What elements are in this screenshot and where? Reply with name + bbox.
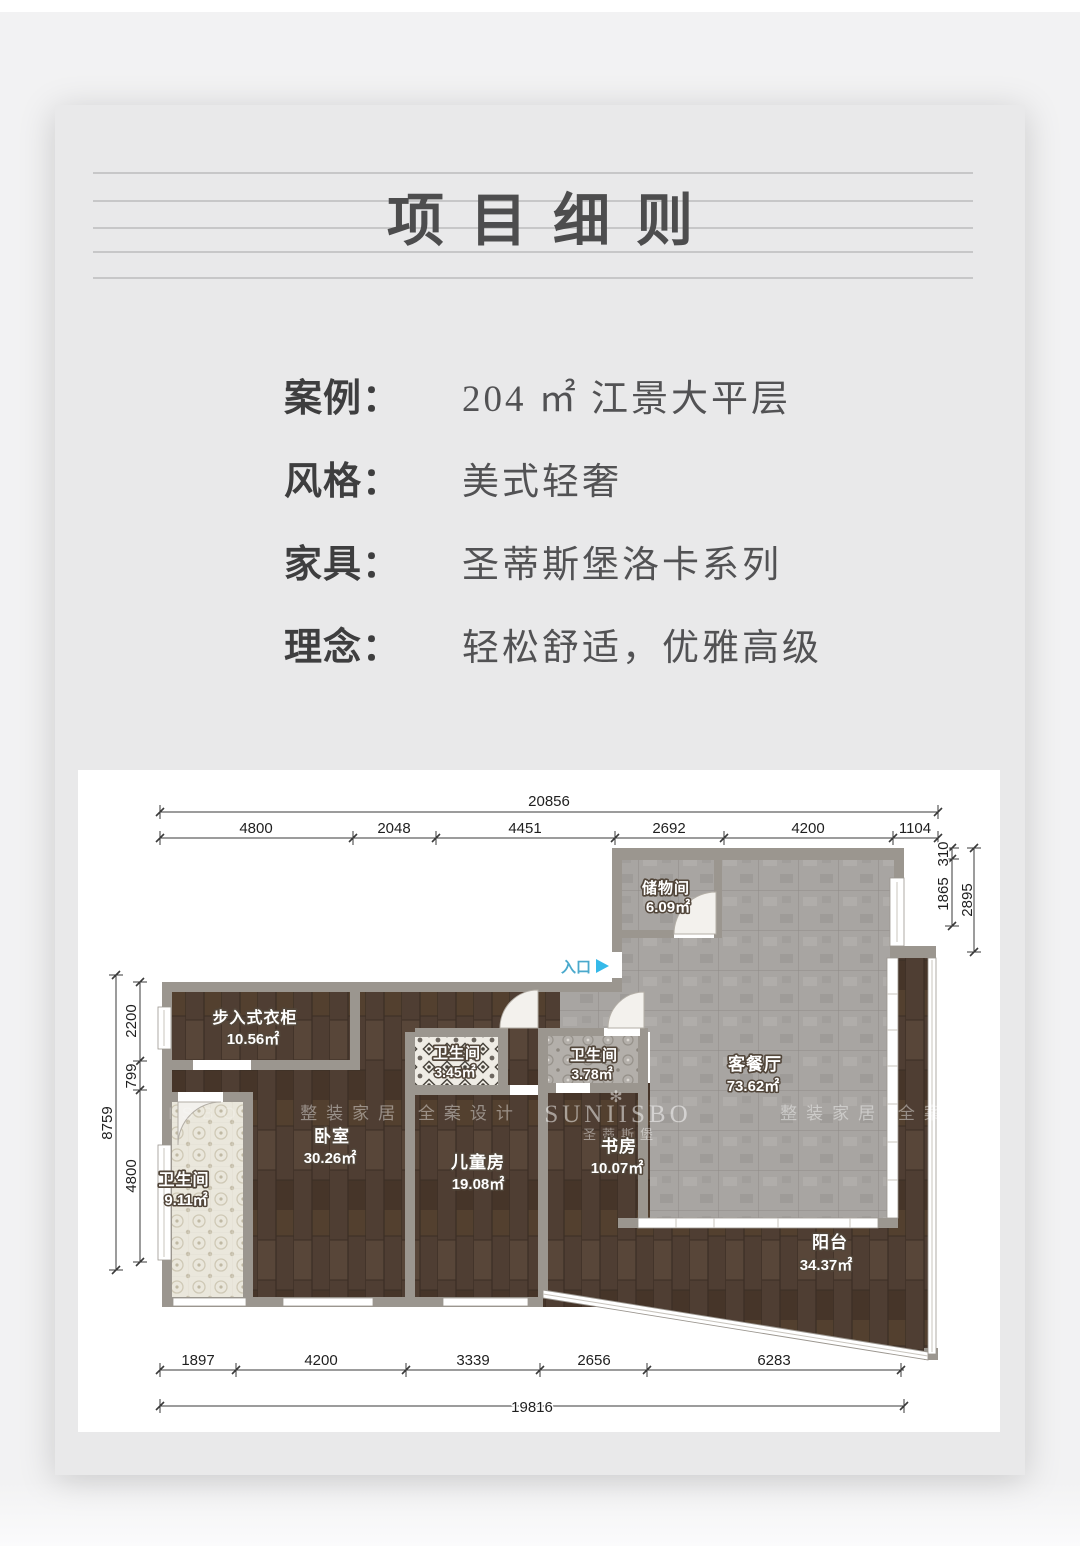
room-area: 3.78㎡ — [571, 1066, 612, 1082]
room-area: 10.07㎡ — [591, 1159, 644, 1177]
floorplan-panel: 入口 SUNIISBO 整装家居 全案设计 SUNIISBO ✻ 圣蒂斯堡 整装… — [78, 770, 1000, 1432]
detail-row-furniture: 家具： 圣蒂斯堡洛卡系列 — [284, 533, 822, 588]
dim-left-total: 8759 — [99, 1106, 116, 1139]
dim-top-seg: 4800 — [239, 820, 272, 837]
title-rule-line — [93, 172, 973, 174]
dim-bottom-seg: 1897 — [181, 1352, 214, 1369]
detail-label: 理念： — [284, 616, 462, 671]
room-name: 卫生间 — [570, 1046, 618, 1064]
detail-card: 项目细则 案例： 204 ㎡ 江景大平层 风格： 美式轻奢 家具： 圣蒂斯堡洛卡… — [55, 105, 1025, 1475]
detail-label: 案例： — [284, 367, 462, 422]
room-name: 步入式衣柜 — [212, 1008, 297, 1027]
poster-page: 项目细则 案例： 204 ㎡ 江景大平层 风格： 美式轻奢 家具： 圣蒂斯堡洛卡… — [0, 0, 1080, 1546]
dim-bottom-seg: 4200 — [304, 1352, 337, 1369]
entrance-label: 入口 — [561, 959, 591, 976]
room-name: 卧室 — [314, 1126, 350, 1146]
dim-bottom-total: 19816 — [511, 1399, 553, 1416]
room-name: 卫生间 — [433, 1044, 481, 1062]
room-name: 卫生间 — [158, 1170, 209, 1189]
detail-value: 美式轻奢 — [462, 451, 622, 505]
room-name: 储物间 — [642, 879, 690, 897]
entrance-marker: 入口 — [561, 959, 609, 976]
room-area: 19.08㎡ — [452, 1175, 505, 1193]
room-area: 9.11㎡ — [164, 1191, 207, 1209]
dim-right-seg: 310 — [935, 841, 952, 866]
dim-bottom-seg: 3339 — [456, 1352, 489, 1369]
detail-label: 风格： — [284, 450, 462, 505]
balcony-floor — [543, 1228, 928, 1356]
dim-top-seg: 4451 — [508, 820, 541, 837]
title-rule-line — [93, 277, 973, 279]
watermark-left: 整装家居 全案设计 — [300, 1104, 522, 1123]
dim-top-seg: 2048 — [377, 820, 410, 837]
dim-left-seg: 799 — [123, 1063, 140, 1088]
room-area: 10.56㎡ — [227, 1030, 280, 1048]
room-area: 30.26㎡ — [304, 1149, 357, 1167]
dim-bottom-seg: 2656 — [577, 1352, 610, 1369]
room-name: 阳台 — [812, 1232, 848, 1252]
detail-row-concept: 理念： 轻松舒适，优雅高级 — [284, 616, 822, 671]
dim-left-seg: 4800 — [123, 1159, 140, 1192]
bottom-gradient — [0, 1482, 1080, 1546]
room-name: 客餐厅 — [727, 1054, 782, 1074]
room-area: 34.37㎡ — [800, 1256, 853, 1274]
entrance-arrow-icon — [596, 959, 609, 973]
page-title: 项目细则 — [55, 193, 1025, 250]
watermark-right: 整装家居 全案设 — [780, 1104, 976, 1123]
dim-top-total: 20856 — [528, 793, 570, 810]
dim-right-seg: 1865 — [935, 877, 952, 910]
dim-right-total: 2895 — [959, 883, 976, 916]
project-details: 案例： 204 ㎡ 江景大平层 风格： 美式轻奢 家具： 圣蒂斯堡洛卡系列 理念… — [284, 367, 822, 699]
flower-icon: ✻ — [609, 1089, 626, 1106]
dim-left-seg: 2200 — [123, 1004, 140, 1037]
top-white-strip — [0, 0, 1080, 12]
room-area: 6.09㎡ — [646, 898, 690, 916]
detail-value: 轻松舒适，优雅高级 — [462, 617, 822, 671]
detail-value: 204 ㎡ 江景大平层 — [462, 368, 791, 422]
dim-bottom-seg: 6283 — [757, 1352, 790, 1369]
dim-top-seg: 4200 — [791, 820, 824, 837]
detail-row-case: 案例： 204 ㎡ 江景大平层 — [284, 367, 822, 422]
room-name: 书房 — [601, 1136, 637, 1156]
floorplan-svg: 入口 SUNIISBO 整装家居 全案设计 SUNIISBO ✻ 圣蒂斯堡 整装… — [78, 770, 1000, 1432]
dim-top-seg: 2692 — [652, 820, 685, 837]
detail-value: 圣蒂斯堡洛卡系列 — [462, 534, 782, 588]
side-walkway-floor — [898, 946, 928, 1228]
room-area: 3.45㎡ — [434, 1064, 475, 1080]
detail-row-style: 风格： 美式轻奢 — [284, 450, 822, 505]
room-area: 73.62㎡ — [727, 1077, 780, 1095]
room-name: 儿童房 — [450, 1152, 505, 1172]
dim-top-seg: 1104 — [899, 820, 931, 837]
detail-label: 家具： — [284, 533, 462, 588]
